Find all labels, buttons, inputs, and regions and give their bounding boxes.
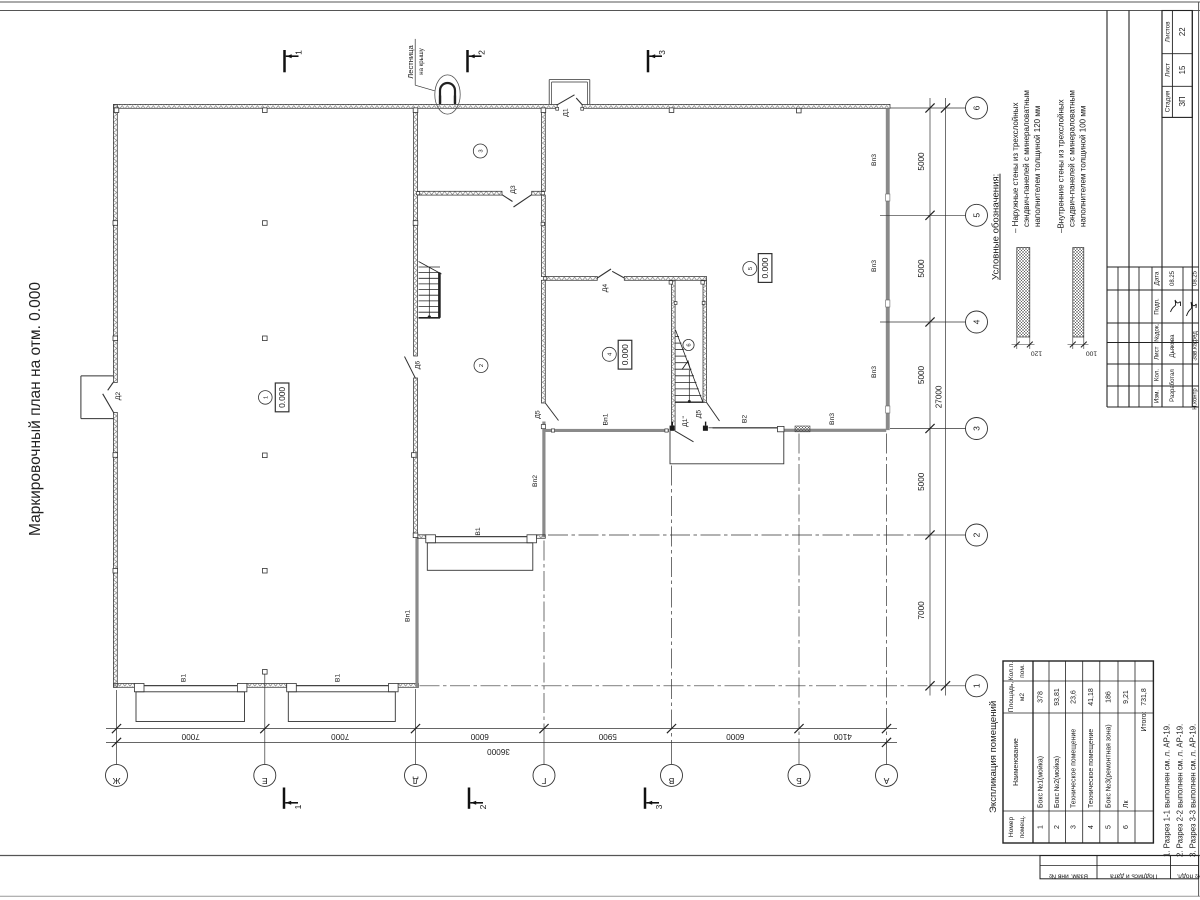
svg-text:Д1: Д1	[563, 108, 570, 117]
svg-text:08.25: 08.25	[1193, 270, 1199, 286]
svg-text:93,81: 93,81	[1054, 688, 1061, 706]
svg-text:3: 3	[657, 50, 667, 55]
svg-text:7000: 7000	[331, 732, 350, 741]
svg-text:22: 22	[1178, 27, 1187, 36]
svg-text:7000: 7000	[917, 601, 926, 620]
svg-text:186: 186	[1105, 691, 1112, 703]
svg-text:731,8: 731,8	[1141, 688, 1148, 706]
svg-text:0.000: 0.000	[277, 387, 287, 408]
svg-text:Листов: Листов	[1165, 21, 1172, 42]
svg-text:1: 1	[294, 50, 304, 55]
svg-text:5900: 5900	[598, 732, 617, 741]
svg-text:5: 5	[971, 213, 981, 218]
svg-text:наполнителем толщиной 100 мм: наполнителем толщиной 100 мм	[1079, 106, 1088, 227]
svg-text:Бокс №2(мойка): Бокс №2(мойка)	[1053, 756, 1061, 808]
svg-text:Е: Е	[262, 776, 268, 786]
svg-text:4100: 4100	[833, 732, 852, 741]
svg-text:наполнителем толщиной 120 мм: наполнителем толщиной 120 мм	[1033, 106, 1042, 227]
svg-text:Вп1: Вп1	[405, 610, 412, 622]
svg-text:5000: 5000	[917, 365, 926, 384]
svg-text:27000: 27000	[935, 385, 944, 408]
svg-text:В: В	[668, 776, 674, 786]
svg-text:Кол.п.: Кол.п.	[1008, 662, 1015, 681]
svg-text:120: 120	[1031, 350, 1043, 357]
svg-text:5000: 5000	[917, 472, 926, 491]
svg-text:15: 15	[1178, 65, 1187, 74]
svg-text:Техническое помещение: Техническое помещение	[1088, 729, 1095, 808]
svg-text:5: 5	[1105, 825, 1112, 829]
svg-text:Д3: Д3	[510, 185, 517, 194]
svg-text:2: 2	[479, 364, 485, 367]
svg-text:3: 3	[654, 804, 664, 809]
svg-text:5000: 5000	[917, 259, 926, 278]
svg-text:м2: м2	[1019, 693, 1026, 702]
svg-text:Зав.кафед: Зав.кафед	[1193, 331, 1199, 361]
svg-text:Подп.: Подп.	[1154, 298, 1161, 315]
svg-text:3: 3	[1071, 825, 1078, 829]
svg-text:2. Разрез 2-2 выполнен см. л.: 2. Разрез 2-2 выполнен см. л. АР-19.	[1176, 724, 1185, 857]
svg-text:1. Разрез 1-1 выполнен см. л.: 1. Разрез 1-1 выполнен см. л. АР-19.	[1163, 724, 1172, 857]
svg-text:2: 2	[971, 532, 981, 537]
svg-text:Наименование: Наименование	[1013, 738, 1020, 786]
svg-text:Маркировочный план на отм. 0.0: Маркировочный план на отм. 0.000	[27, 282, 44, 536]
svg-text:–Внутренние стены из трехслойн: –Внутренние стены из трехслойных	[1057, 99, 1066, 233]
svg-text:Кол.: Кол.	[1154, 369, 1161, 382]
svg-text:Д5: Д5	[535, 410, 542, 419]
svg-text:Д: Д	[412, 776, 418, 786]
svg-text:Дата: Дата	[1154, 271, 1161, 285]
svg-text:Вп1: Вп1	[603, 413, 610, 425]
svg-text:В1: В1	[335, 674, 342, 683]
svg-text:1: 1	[1038, 825, 1045, 829]
svg-text:3: 3	[971, 426, 981, 431]
svg-text:Б: Б	[796, 776, 802, 786]
svg-text:А: А	[883, 776, 889, 786]
svg-text:36000: 36000	[487, 747, 510, 756]
svg-text:Вп3: Вп3	[829, 413, 836, 425]
svg-text:Д1": Д1"	[682, 416, 689, 427]
svg-text:378: 378	[1038, 691, 1045, 703]
svg-text:Подпись и дата: Подпись и дата	[1110, 872, 1158, 879]
svg-text:Лестница: Лестница	[406, 44, 415, 78]
svg-text:2: 2	[1054, 825, 1061, 829]
svg-text:Д5: Д5	[696, 410, 703, 419]
svg-text:2: 2	[477, 50, 487, 55]
svg-text:Вп3: Вп3	[871, 366, 878, 378]
svg-text:Номер: Номер	[1008, 817, 1015, 838]
svg-text:Стадия: Стадия	[1165, 90, 1172, 112]
svg-text:6000: 6000	[470, 732, 489, 741]
svg-text:Итого:: Итого:	[1141, 711, 1148, 731]
svg-text:Инв. № подл.: Инв. № подл.	[1176, 872, 1200, 879]
svg-text:Условные обозначения:: Условные обозначения:	[991, 174, 1002, 280]
svg-text:Н.контр: Н.контр	[1193, 388, 1199, 410]
svg-text:Изм.: Изм.	[1154, 390, 1161, 404]
svg-text:4: 4	[971, 319, 981, 324]
svg-text:23,6: 23,6	[1071, 690, 1078, 704]
svg-text:3: 3	[479, 149, 485, 152]
svg-text:Бокс №1(мойка): Бокс №1(мойка)	[1037, 756, 1045, 808]
svg-text:2: 2	[478, 804, 488, 809]
svg-text:6: 6	[971, 105, 981, 110]
svg-text:пом.: пом.	[1019, 664, 1026, 678]
svg-text:6: 6	[687, 343, 693, 346]
svg-text:Лист: Лист	[1154, 346, 1161, 360]
svg-text:Д4: Д4	[602, 284, 609, 293]
svg-text:6: 6	[1123, 825, 1130, 829]
svg-text:ЗП: ЗП	[1178, 96, 1187, 106]
svg-text:Вп2: Вп2	[532, 475, 539, 487]
svg-text:Вп3: Вп3	[871, 154, 878, 166]
svg-text:– Наружные стены из трехслойны: – Наружные стены из трехслойных	[1011, 103, 1020, 233]
svg-text:сэндвич-панелей с минераловатн: сэндвич-панелей с минераловатным	[1022, 90, 1031, 227]
svg-text:5: 5	[748, 267, 754, 270]
svg-text:Д6: Д6	[415, 361, 422, 370]
svg-text:Техническое помещение: Техническое помещение	[1071, 729, 1078, 808]
svg-text:9,21: 9,21	[1123, 690, 1130, 704]
svg-text:7000: 7000	[181, 732, 200, 741]
svg-text:100: 100	[1086, 350, 1098, 357]
svg-text:В1: В1	[181, 674, 188, 683]
svg-text:Г: Г	[541, 776, 546, 786]
svg-text:5000: 5000	[917, 152, 926, 171]
svg-text:1: 1	[264, 396, 270, 399]
svg-text:08.25: 08.25	[1170, 270, 1176, 286]
svg-text:6000: 6000	[726, 732, 745, 741]
svg-text:Вп3: Вп3	[871, 260, 878, 272]
svg-text:0.000: 0.000	[620, 344, 630, 365]
svg-text:Экспликация помещений: Экспликация помещений	[988, 701, 999, 813]
svg-text:4: 4	[1088, 825, 1095, 829]
svg-text:Ж: Ж	[112, 776, 120, 786]
svg-text:Бокс №3(ремонтная зона): Бокс №3(ремонтная зона)	[1105, 724, 1112, 808]
svg-text:1: 1	[293, 804, 303, 809]
svg-text:В2: В2	[742, 415, 749, 424]
svg-text:№док.: №док.	[1154, 323, 1161, 341]
svg-text:Разработал: Разработал	[1170, 369, 1176, 402]
svg-text:41,18: 41,18	[1088, 688, 1095, 706]
svg-text:3. Разрез 3-3 выполнен см. л.: 3. Разрез 3-3 выполнен см. л. АР-19.	[1189, 724, 1198, 857]
svg-text:Площадь,: Площадь,	[1008, 682, 1015, 713]
svg-text:Д2: Д2	[115, 392, 122, 401]
svg-text:В1: В1	[475, 527, 482, 536]
svg-text:на крышу: на крышу	[419, 48, 425, 74]
svg-text:Лист: Лист	[1165, 63, 1172, 77]
svg-text:1: 1	[971, 683, 981, 688]
svg-text:Лк: Лк	[1123, 799, 1130, 808]
svg-text:Взам. инв №: Взам. инв №	[1049, 872, 1088, 879]
svg-text:помещ.: помещ.	[1019, 815, 1026, 838]
svg-text:0.000: 0.000	[760, 257, 770, 278]
svg-text:сэндвич-панелей с минераловатн: сэндвич-панелей с минераловатным	[1068, 90, 1077, 227]
svg-text:Дьякова: Дьякова	[1170, 334, 1176, 358]
